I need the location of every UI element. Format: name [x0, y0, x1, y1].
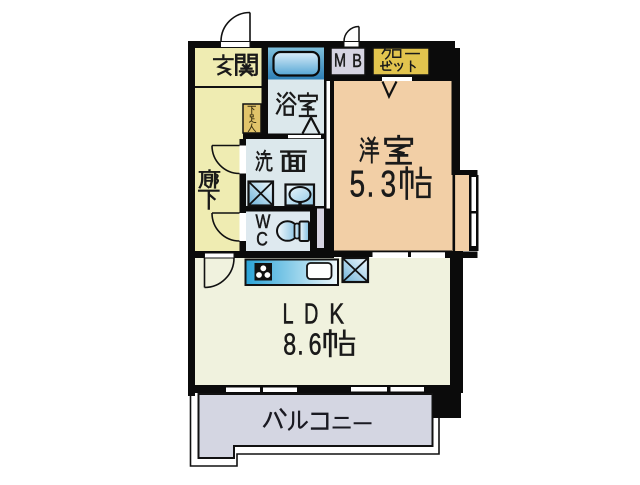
svg-text:.: . — [367, 163, 375, 205]
svg-text:M: M — [334, 50, 346, 71]
svg-text:K: K — [329, 299, 344, 330]
svg-text:B: B — [352, 50, 362, 71]
svg-text:6: 6 — [309, 326, 322, 361]
svg-text:8: 8 — [283, 326, 296, 361]
svg-text:3: 3 — [381, 163, 397, 205]
svg-text:.: . — [297, 326, 303, 361]
svg-text:C: C — [256, 228, 268, 250]
svg-text:5: 5 — [350, 163, 366, 205]
